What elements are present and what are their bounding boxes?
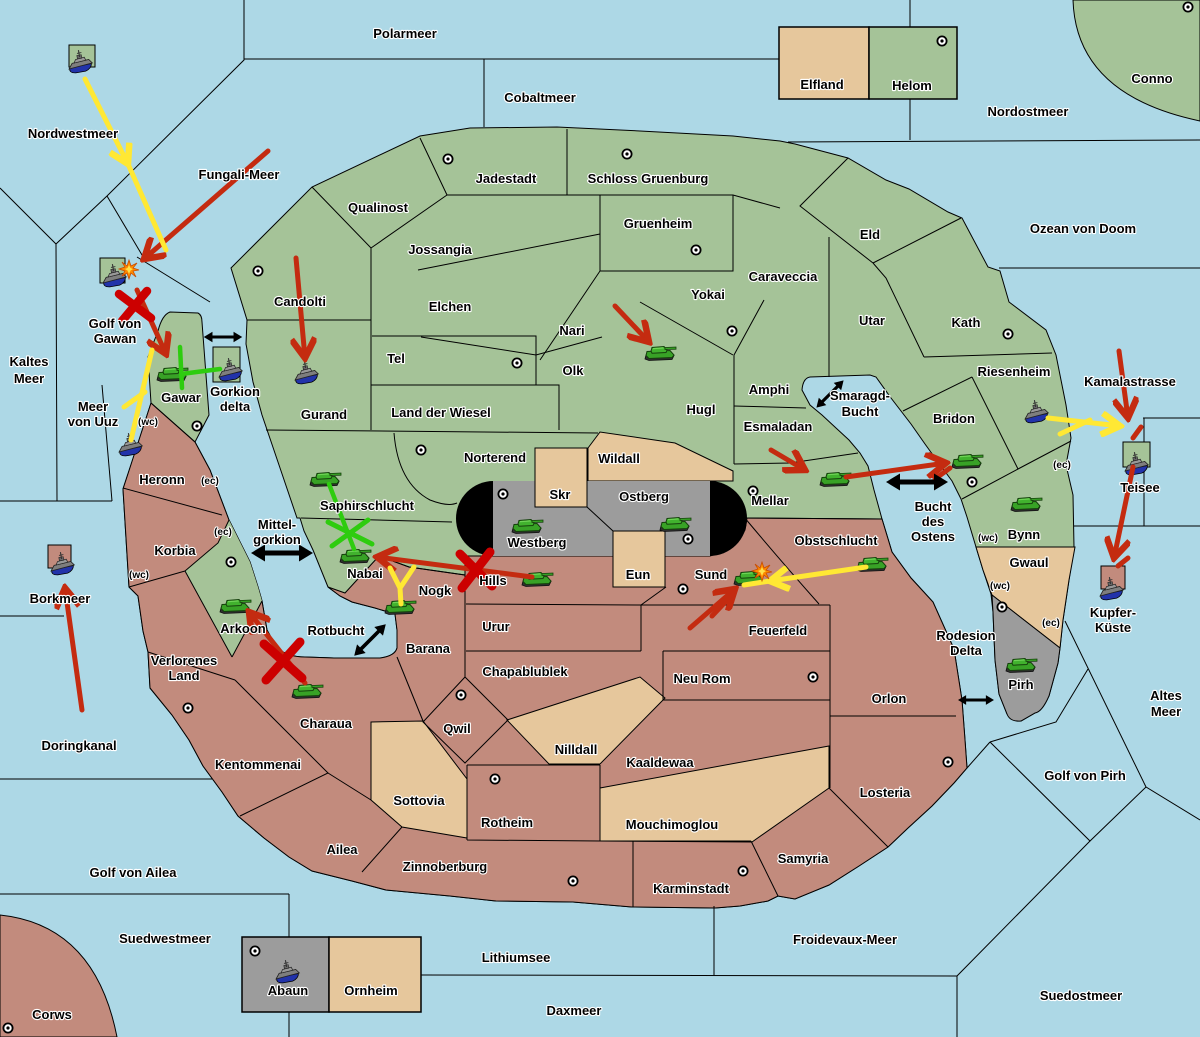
svg-text:(wc): (wc): [990, 581, 1010, 592]
svg-text:Borkmeer: Borkmeer: [30, 591, 91, 606]
svg-text:Elchen: Elchen: [429, 299, 472, 314]
svg-text:Yokai: Yokai: [691, 287, 725, 302]
svg-text:Wildall: Wildall: [598, 451, 640, 466]
svg-text:(ec): (ec): [201, 476, 219, 487]
svg-text:Altes: Altes: [1150, 688, 1182, 703]
svg-text:(ec): (ec): [1042, 618, 1060, 629]
svg-text:Nabai: Nabai: [347, 566, 382, 581]
svg-text:Jossangia: Jossangia: [408, 242, 472, 257]
svg-text:Daxmeer: Daxmeer: [547, 1003, 602, 1018]
svg-text:Zinnoberburg: Zinnoberburg: [403, 859, 488, 874]
svg-text:des: des: [922, 514, 944, 529]
svg-text:Feuerfeld: Feuerfeld: [749, 623, 808, 638]
svg-text:Polarmeer: Polarmeer: [373, 26, 437, 41]
svg-text:Losteria: Losteria: [860, 785, 911, 800]
svg-text:Candolti: Candolti: [274, 294, 326, 309]
svg-text:Abaun: Abaun: [268, 983, 309, 998]
svg-text:Nari: Nari: [559, 323, 584, 338]
svg-text:Caraveccia: Caraveccia: [749, 269, 818, 284]
svg-text:Schloss Gruenburg: Schloss Gruenburg: [588, 171, 709, 186]
svg-text:Nordostmeer: Nordostmeer: [988, 104, 1069, 119]
svg-text:Golf von Pirh: Golf von Pirh: [1044, 768, 1126, 783]
svg-text:Bucht: Bucht: [915, 499, 953, 514]
svg-text:Fungali-Meer: Fungali-Meer: [199, 167, 280, 182]
svg-text:(ec): (ec): [214, 527, 232, 538]
svg-text:Kath: Kath: [952, 315, 981, 330]
svg-text:Obstschlucht: Obstschlucht: [794, 533, 878, 548]
svg-text:Skr: Skr: [550, 487, 571, 502]
svg-text:Tel: Tel: [387, 351, 405, 366]
svg-text:Westberg: Westberg: [508, 535, 567, 550]
svg-text:Doringkanal: Doringkanal: [41, 738, 116, 753]
svg-text:Smaragd-: Smaragd-: [830, 388, 890, 403]
svg-text:Hugl: Hugl: [687, 402, 716, 417]
svg-text:Ornheim: Ornheim: [344, 983, 397, 998]
svg-text:Gwaul: Gwaul: [1009, 555, 1048, 570]
svg-text:Saphirschlucht: Saphirschlucht: [320, 498, 415, 513]
svg-text:Cobaltmeer: Cobaltmeer: [504, 90, 576, 105]
svg-text:Urur: Urur: [482, 619, 509, 634]
svg-text:Gruenheim: Gruenheim: [624, 216, 693, 231]
svg-text:Bucht: Bucht: [842, 404, 880, 419]
svg-text:Golf von Ailea: Golf von Ailea: [90, 865, 178, 880]
svg-text:(wc): (wc): [138, 417, 158, 428]
svg-text:(wc): (wc): [129, 570, 149, 581]
svg-text:Küste: Küste: [1095, 620, 1131, 635]
svg-text:Conno: Conno: [1131, 71, 1172, 86]
svg-text:Froidevaux-Meer: Froidevaux-Meer: [793, 932, 897, 947]
svg-text:Golf von: Golf von: [89, 316, 142, 331]
svg-text:von Uuz: von Uuz: [68, 414, 119, 429]
svg-text:(ec): (ec): [1053, 460, 1071, 471]
svg-text:Verlorenes: Verlorenes: [151, 653, 218, 668]
svg-text:Rodesion: Rodesion: [936, 628, 995, 643]
svg-text:Bynn: Bynn: [1008, 527, 1041, 542]
svg-text:Utar: Utar: [859, 313, 885, 328]
svg-text:Kamalastrasse: Kamalastrasse: [1084, 374, 1176, 389]
svg-text:Ostens: Ostens: [911, 529, 955, 544]
svg-text:Hills: Hills: [479, 573, 506, 588]
svg-text:Nordwestmeer: Nordwestmeer: [28, 126, 118, 141]
svg-text:Arkoon: Arkoon: [220, 621, 266, 636]
svg-text:Suedwestmeer: Suedwestmeer: [119, 931, 211, 946]
svg-text:Gorkion: Gorkion: [210, 384, 260, 399]
svg-text:Qualinost: Qualinost: [348, 200, 409, 215]
svg-text:Eld: Eld: [860, 227, 880, 242]
svg-text:Norterend: Norterend: [464, 450, 526, 465]
svg-text:Meer: Meer: [78, 399, 108, 414]
svg-text:Kentommenai: Kentommenai: [215, 757, 301, 772]
svg-text:Olk: Olk: [563, 363, 585, 378]
svg-text:Meer: Meer: [1151, 704, 1181, 719]
svg-text:Land der Wiesel: Land der Wiesel: [391, 405, 491, 420]
svg-text:Esmaladan: Esmaladan: [744, 419, 813, 434]
svg-text:delta: delta: [220, 399, 251, 414]
svg-text:Land: Land: [168, 668, 199, 683]
svg-text:Bridon: Bridon: [933, 411, 975, 426]
svg-text:Riesenheim: Riesenheim: [978, 364, 1051, 379]
svg-text:Gawan: Gawan: [94, 331, 137, 346]
svg-text:Sottovia: Sottovia: [393, 793, 445, 808]
svg-text:Charaua: Charaua: [300, 716, 353, 731]
svg-text:Mittel-: Mittel-: [258, 517, 296, 532]
svg-text:Samyria: Samyria: [778, 851, 829, 866]
svg-text:Sund: Sund: [695, 567, 728, 582]
svg-text:Rotheim: Rotheim: [481, 815, 533, 830]
svg-text:(wc): (wc): [978, 533, 998, 544]
svg-text:Ozean von Doom: Ozean von Doom: [1030, 221, 1136, 236]
svg-text:Helom: Helom: [892, 78, 932, 93]
svg-text:Mellar: Mellar: [751, 493, 789, 508]
svg-text:Gawar: Gawar: [161, 390, 201, 405]
svg-text:Qwil: Qwil: [443, 721, 470, 736]
svg-text:Nogk: Nogk: [419, 583, 452, 598]
svg-text:Ailea: Ailea: [326, 842, 358, 857]
svg-text:Eun: Eun: [626, 567, 651, 582]
svg-text:Barana: Barana: [406, 641, 451, 656]
svg-text:Kaltes: Kaltes: [9, 354, 48, 369]
svg-text:Suedostmeer: Suedostmeer: [1040, 988, 1122, 1003]
svg-text:Teisee: Teisee: [1120, 480, 1160, 495]
svg-text:Gurand: Gurand: [301, 407, 347, 422]
svg-text:Meer: Meer: [14, 371, 44, 386]
svg-text:Ostberg: Ostberg: [619, 489, 669, 504]
svg-text:Elfland: Elfland: [800, 77, 843, 92]
svg-text:Jadestadt: Jadestadt: [476, 171, 537, 186]
svg-text:Orlon: Orlon: [872, 691, 907, 706]
svg-text:Rotbucht: Rotbucht: [307, 623, 365, 638]
svg-text:Pirh: Pirh: [1008, 677, 1033, 692]
svg-text:Heronn: Heronn: [139, 472, 185, 487]
svg-text:Korbia: Korbia: [154, 543, 196, 558]
svg-text:Nilldall: Nilldall: [555, 742, 598, 757]
svg-text:Karminstadt: Karminstadt: [653, 881, 730, 896]
svg-text:Neu Rom: Neu Rom: [673, 671, 730, 686]
svg-text:Mouchimoglou: Mouchimoglou: [626, 817, 718, 832]
svg-text:gorkion: gorkion: [253, 532, 301, 547]
svg-text:Chapablublek: Chapablublek: [482, 664, 568, 679]
svg-text:Kaaldewaa: Kaaldewaa: [626, 755, 694, 770]
svg-text:Corws: Corws: [32, 1007, 72, 1022]
svg-text:Delta: Delta: [950, 643, 983, 658]
svg-text:Kupfer-: Kupfer-: [1090, 605, 1136, 620]
svg-text:Amphi: Amphi: [749, 382, 789, 397]
svg-text:Lithiumsee: Lithiumsee: [482, 950, 551, 965]
